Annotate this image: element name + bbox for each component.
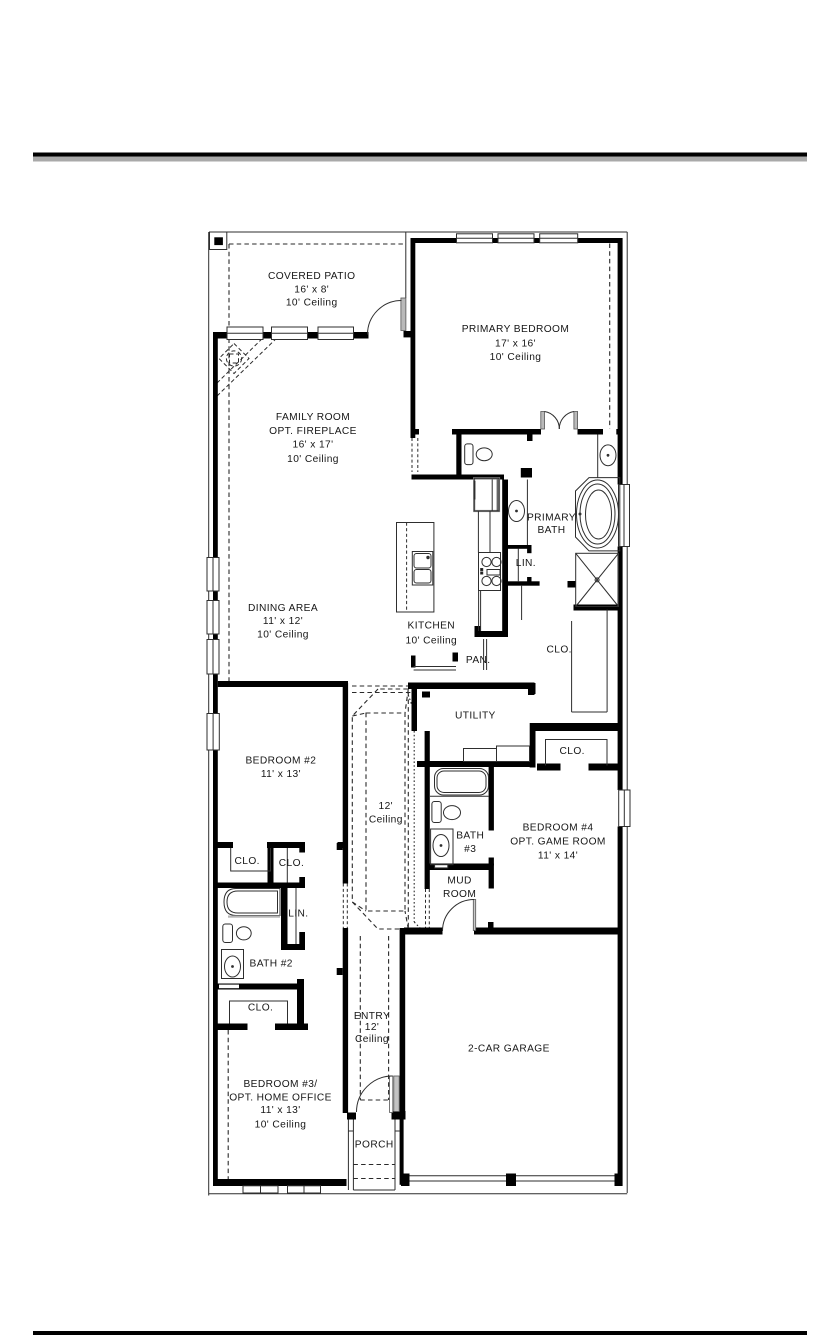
svg-text:10' Ceiling: 10' Ceiling bbox=[490, 352, 542, 363]
svg-text:OPT. FIREPLACE: OPT. FIREPLACE bbox=[269, 426, 357, 437]
svg-text:11' x 12': 11' x 12' bbox=[263, 616, 303, 627]
svg-text:Ceiling: Ceiling bbox=[355, 1034, 389, 1045]
svg-text:OPT. GAME ROOM: OPT. GAME ROOM bbox=[510, 837, 606, 848]
svg-text:2-CAR GARAGE: 2-CAR GARAGE bbox=[468, 1044, 550, 1055]
svg-text:COVERED PATIO: COVERED PATIO bbox=[268, 271, 355, 282]
svg-text:10' Ceiling: 10' Ceiling bbox=[287, 454, 339, 465]
svg-text:BATH: BATH bbox=[456, 831, 484, 842]
svg-text:BEDROOM #3/: BEDROOM #3/ bbox=[243, 1079, 317, 1090]
svg-text:11' x 13': 11' x 13' bbox=[260, 1105, 300, 1116]
svg-text:CLO.: CLO. bbox=[248, 1002, 273, 1013]
svg-text:OPT. HOME OFFICE: OPT. HOME OFFICE bbox=[229, 1092, 332, 1103]
svg-text:10' Ceiling: 10' Ceiling bbox=[286, 297, 338, 308]
svg-text:16' x 17': 16' x 17' bbox=[293, 440, 334, 451]
svg-text:CLO.: CLO. bbox=[547, 644, 572, 655]
svg-text:10' Ceiling: 10' Ceiling bbox=[257, 629, 309, 640]
svg-text:BEDROOM #4: BEDROOM #4 bbox=[523, 823, 594, 834]
svg-text:PRIMARY BEDROOM: PRIMARY BEDROOM bbox=[462, 324, 570, 335]
svg-text:DINING AREA: DINING AREA bbox=[248, 603, 318, 614]
svg-text:16' x 8': 16' x 8' bbox=[294, 284, 329, 295]
svg-text:12': 12' bbox=[379, 801, 393, 812]
svg-text:10' Ceiling: 10' Ceiling bbox=[405, 635, 457, 646]
svg-text:PRIMARY: PRIMARY bbox=[527, 513, 576, 524]
svg-text:BEDROOM #2: BEDROOM #2 bbox=[245, 755, 316, 766]
svg-text:KITCHEN: KITCHEN bbox=[408, 620, 456, 631]
svg-text:LIN.: LIN. bbox=[516, 558, 536, 569]
svg-text:Ceiling: Ceiling bbox=[369, 815, 403, 826]
svg-text:12': 12' bbox=[365, 1022, 379, 1033]
svg-text:10' Ceiling: 10' Ceiling bbox=[255, 1120, 307, 1131]
svg-text:#3: #3 bbox=[464, 844, 476, 855]
svg-text:UTILITY: UTILITY bbox=[455, 711, 496, 722]
svg-text:11' x 14': 11' x 14' bbox=[538, 850, 578, 861]
svg-text:CLO.: CLO. bbox=[560, 746, 585, 757]
svg-text:17' x 16': 17' x 16' bbox=[495, 338, 536, 349]
svg-text:LIN.: LIN. bbox=[288, 908, 308, 919]
svg-text:ROOM: ROOM bbox=[443, 889, 476, 900]
svg-text:FAMILY ROOM: FAMILY ROOM bbox=[276, 412, 350, 423]
svg-text:ENTRY: ENTRY bbox=[354, 1011, 390, 1022]
svg-text:CLO.: CLO. bbox=[279, 858, 304, 869]
svg-text:BATH #2: BATH #2 bbox=[250, 959, 293, 970]
svg-text:BATH: BATH bbox=[537, 525, 565, 536]
svg-text:11' x 13': 11' x 13' bbox=[261, 769, 301, 780]
svg-text:CLO.: CLO. bbox=[235, 856, 260, 867]
svg-text:MUD: MUD bbox=[447, 876, 471, 887]
svg-text:PAN.: PAN. bbox=[466, 655, 491, 666]
svg-text:PORCH: PORCH bbox=[355, 1139, 394, 1150]
